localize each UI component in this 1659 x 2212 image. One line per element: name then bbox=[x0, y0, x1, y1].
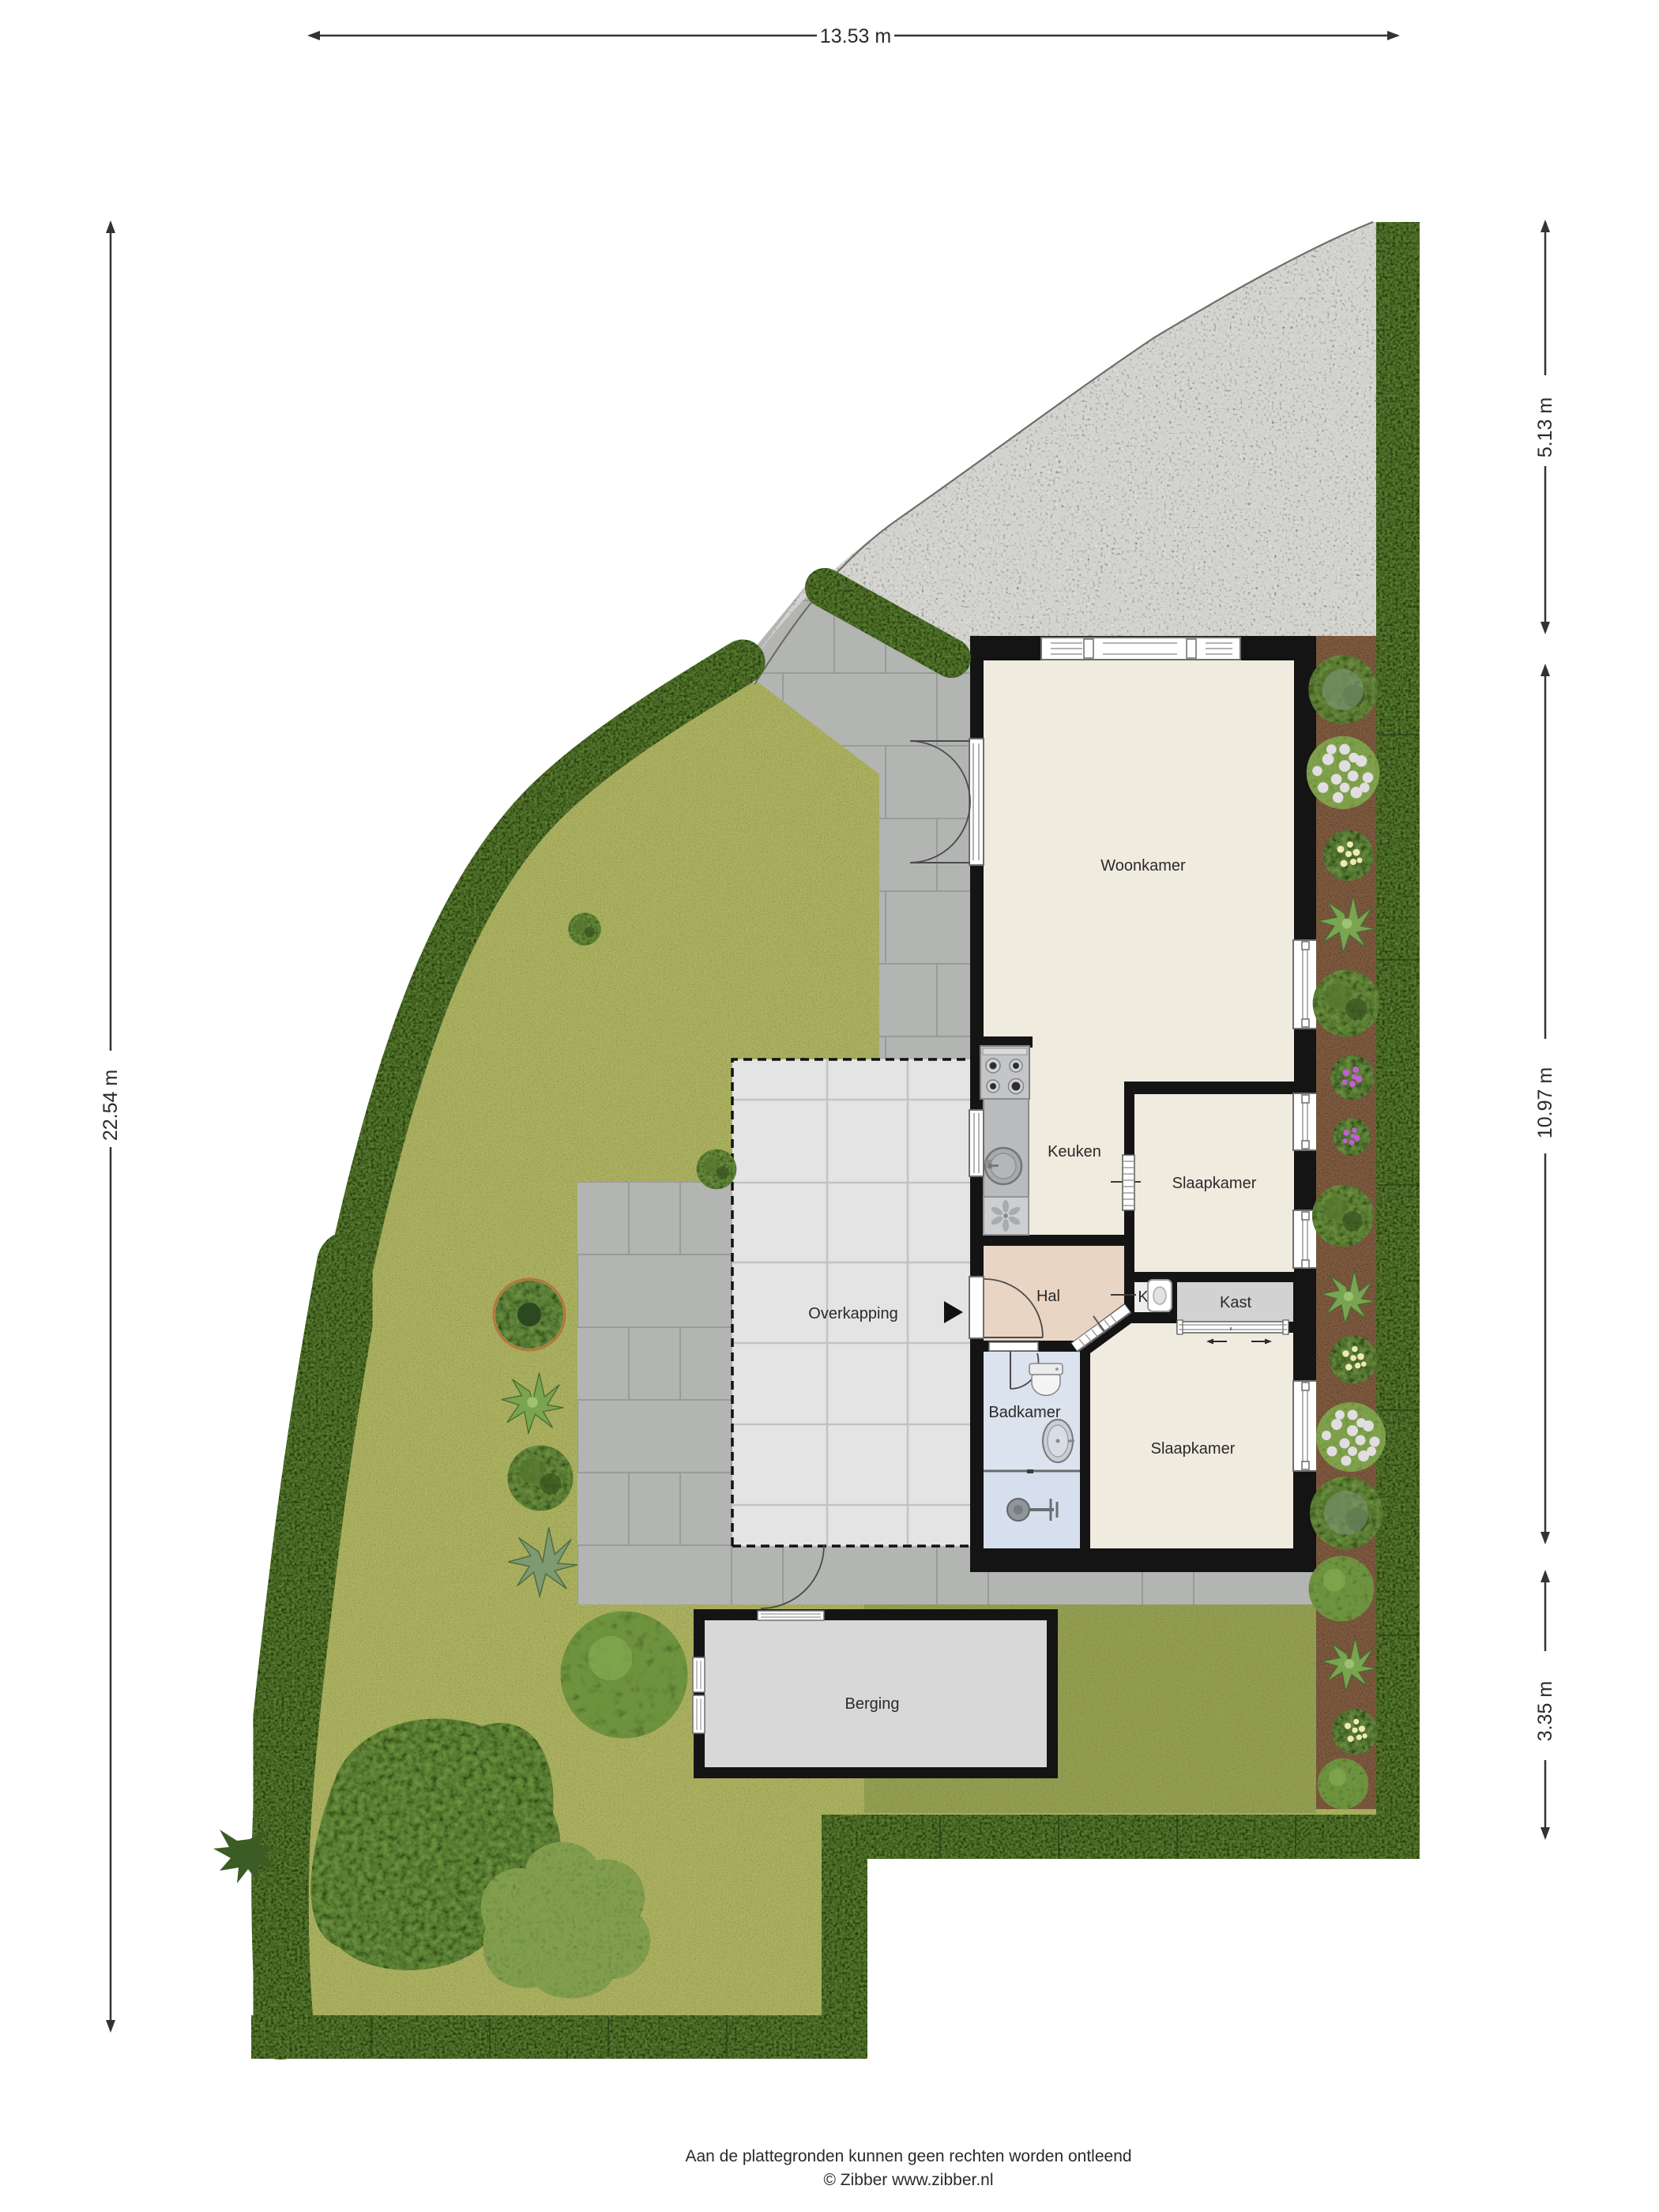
svg-text:Overkapping: Overkapping bbox=[808, 1305, 897, 1322]
svg-text:Aan de plattegronden kunnen ge: Aan de plattegronden kunnen geen rechten… bbox=[685, 2147, 1131, 2165]
svg-text:5.13 m: 5.13 m bbox=[1534, 397, 1556, 457]
svg-text:© Zibber www.zibber.nl: © Zibber www.zibber.nl bbox=[823, 2171, 993, 2189]
svg-text:Badkamer: Badkamer bbox=[988, 1404, 1060, 1421]
svg-text:Keuken: Keuken bbox=[1048, 1143, 1101, 1161]
svg-text:3.35 m: 3.35 m bbox=[1534, 1681, 1556, 1741]
svg-text:Kast: Kast bbox=[1220, 1294, 1251, 1311]
svg-text:Hal: Hal bbox=[1036, 1288, 1060, 1305]
svg-text:22.54 m: 22.54 m bbox=[100, 1070, 122, 1141]
svg-text:13.53 m: 13.53 m bbox=[820, 25, 891, 47]
svg-text:Woonkamer: Woonkamer bbox=[1100, 857, 1186, 875]
svg-text:Slaapkamer: Slaapkamer bbox=[1172, 1175, 1257, 1192]
svg-text:10.97 m: 10.97 m bbox=[1534, 1067, 1556, 1138]
svg-text:Slaapkamer: Slaapkamer bbox=[1151, 1440, 1236, 1458]
svg-text:Berging: Berging bbox=[845, 1695, 900, 1713]
